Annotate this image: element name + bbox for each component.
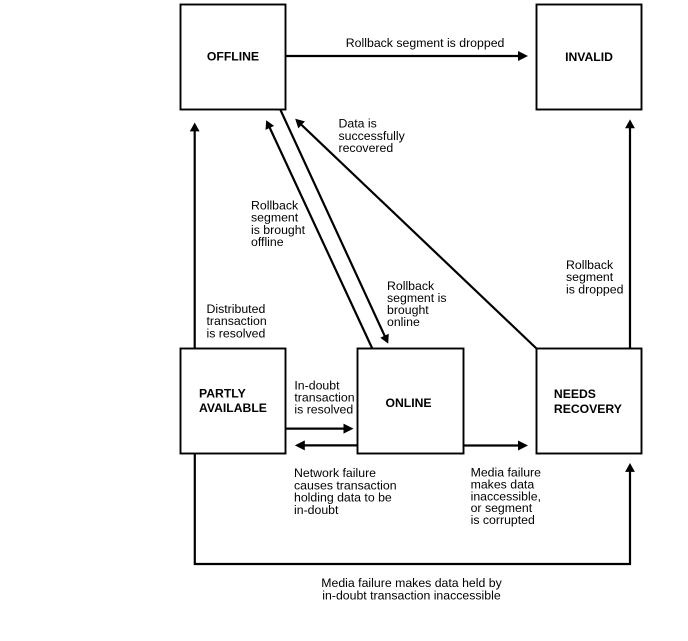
svg-text:AVAILABLE: AVAILABLE — [199, 401, 267, 415]
svg-text:in-doubt: in-doubt — [294, 503, 339, 517]
svg-text:INVALID: INVALID — [565, 50, 613, 64]
svg-text:NEEDS: NEEDS — [554, 387, 596, 401]
svg-text:RECOVERY: RECOVERY — [554, 402, 622, 416]
svg-text:in-doubt transaction inaccessi: in-doubt transaction inaccessible — [322, 588, 501, 602]
svg-text:Rollback segment is dropped: Rollback segment is dropped — [346, 36, 505, 50]
svg-text:is resolved: is resolved — [207, 326, 266, 340]
svg-text:online: online — [387, 315, 420, 329]
svg-text:recovered: recovered — [339, 141, 394, 155]
svg-text:is corrupted: is corrupted — [471, 513, 535, 527]
svg-text:ONLINE: ONLINE — [385, 396, 431, 410]
svg-text:offline: offline — [251, 235, 284, 249]
svg-text:is resolved: is resolved — [294, 403, 353, 417]
svg-text:OFFLINE: OFFLINE — [207, 50, 259, 64]
svg-text:is dropped: is dropped — [566, 282, 624, 296]
svg-text:PARTLY: PARTLY — [199, 386, 246, 400]
